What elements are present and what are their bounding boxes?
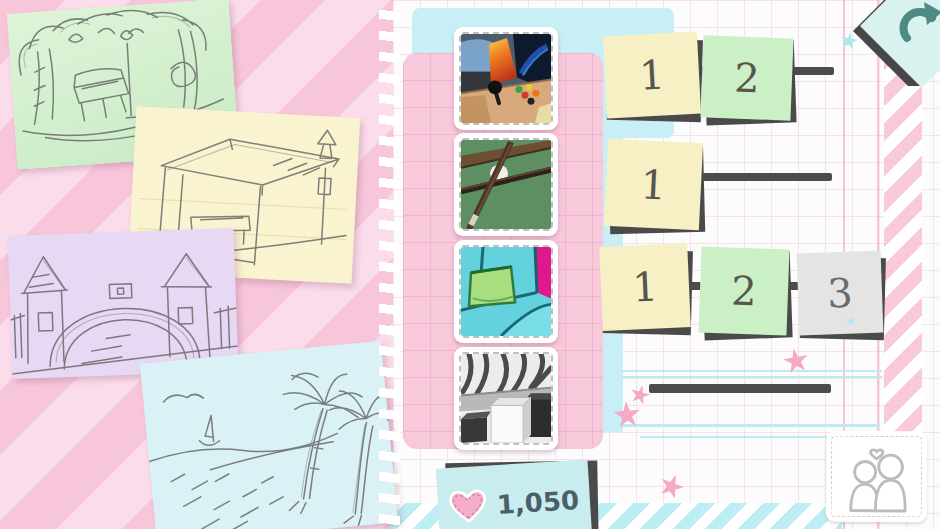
monochrome-photo-icon — [461, 354, 551, 443]
stamp-billiard-cues[interactable] — [454, 133, 558, 236]
cyan-accent-line — [622, 424, 880, 427]
level-note-3[interactable]: 3 — [798, 252, 882, 334]
level-number: 1 — [604, 139, 703, 231]
level-note-2[interactable]: 2 — [700, 248, 788, 334]
perforated-edge — [379, 0, 400, 529]
sketch-card-castle — [8, 228, 239, 379]
restart-button[interactable] — [852, 0, 940, 86]
beach-palms-sketch-icon — [140, 341, 398, 529]
couple-heart-icon — [832, 437, 922, 517]
level-note-2[interactable]: 2 — [702, 37, 792, 119]
level-number: 2 — [699, 246, 790, 335]
heart-icon — [448, 489, 488, 525]
stamp-couch-pillow[interactable] — [454, 240, 558, 343]
sketch-card-beach — [140, 341, 398, 529]
level-number: 1 — [599, 243, 691, 331]
cyan-accent-line — [622, 370, 882, 372]
level-number: 3 — [797, 251, 884, 336]
castle-gate-sketch-icon — [8, 228, 239, 379]
cyan-accent-line — [622, 376, 882, 378]
level-note-1[interactable]: 1 — [601, 245, 689, 329]
level-track-empty — [649, 384, 831, 393]
level-note-1[interactable]: 1 — [605, 34, 699, 116]
multiplayer-button[interactable] — [826, 431, 928, 523]
arcade-photo-icon — [461, 34, 551, 123]
level-select-screen: 1 2 1 1 2 3 — [0, 0, 940, 529]
level-number: 2 — [700, 35, 793, 120]
stamp-arcade-machine[interactable] — [454, 27, 558, 130]
couch-photo-icon — [461, 247, 551, 336]
level-note-1[interactable]: 1 — [606, 141, 701, 228]
score-card: 1,050 — [438, 464, 590, 529]
score-value: 1,050 — [496, 485, 580, 520]
level-number: 1 — [603, 32, 701, 119]
stamp-monochrome-room[interactable] — [454, 347, 558, 450]
billiards-photo-icon — [461, 140, 551, 229]
